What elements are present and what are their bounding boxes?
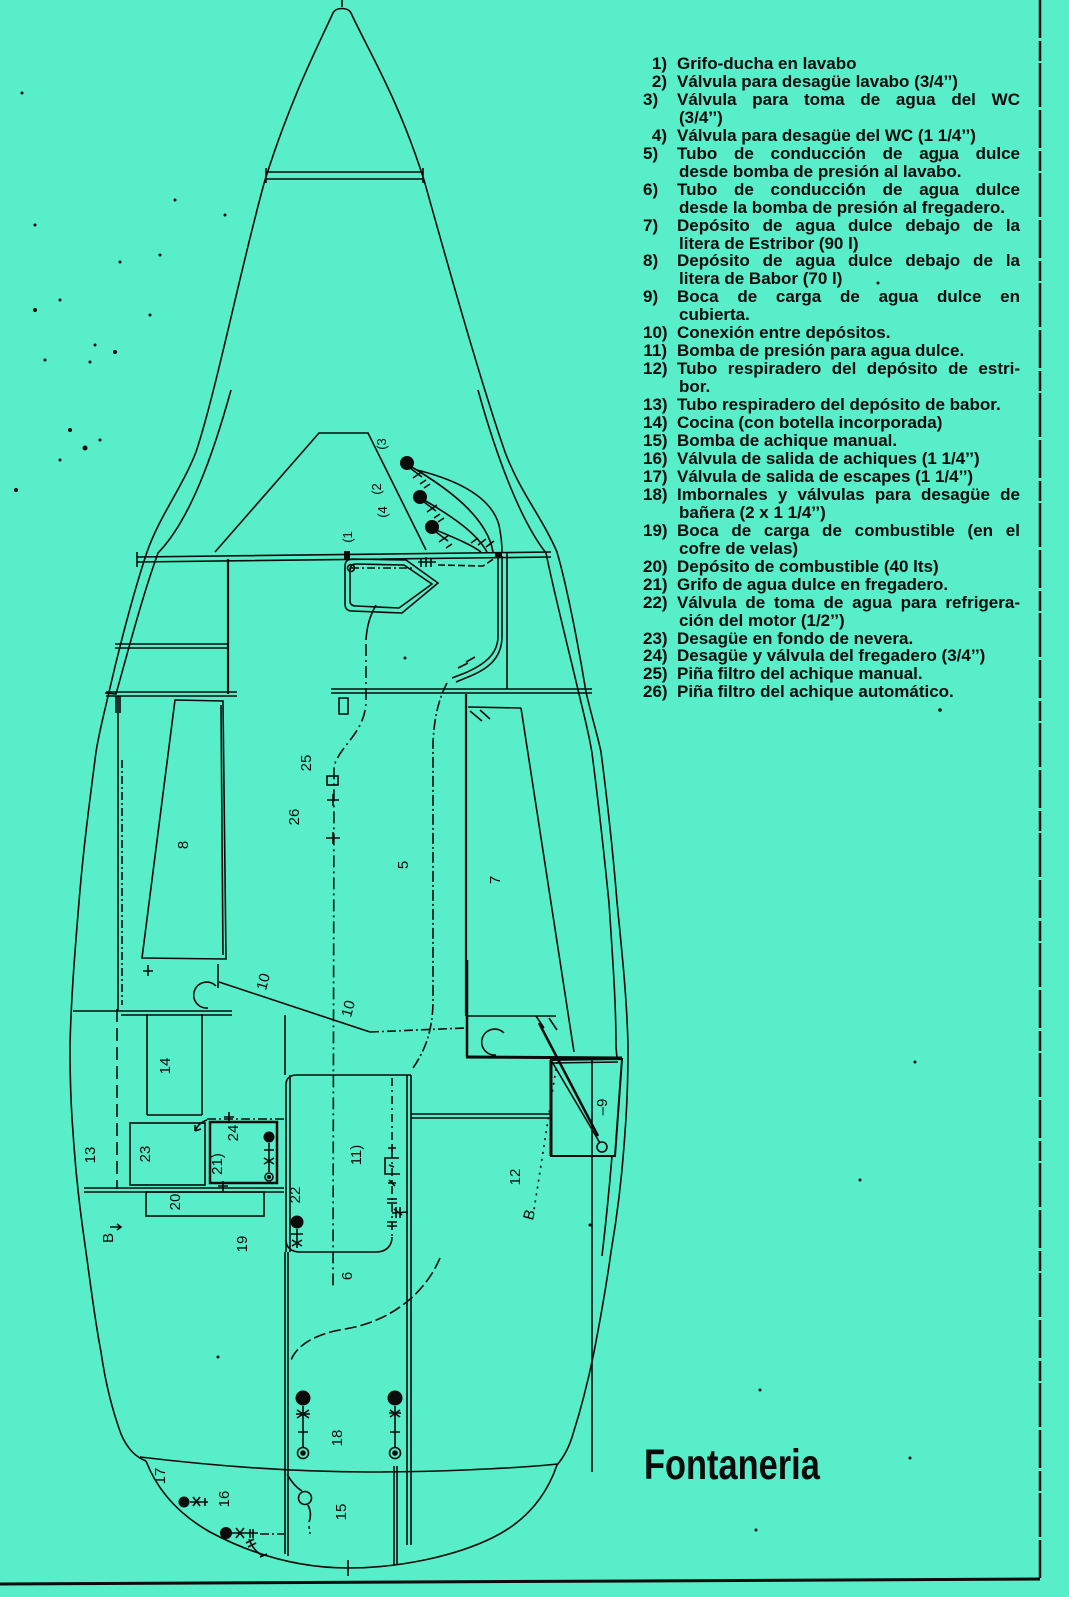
svg-text:B: B	[100, 1233, 117, 1243]
svg-text:(4: (4	[375, 506, 390, 518]
svg-text:13: 13	[82, 1147, 99, 1164]
svg-text:23: 23	[137, 1146, 154, 1163]
svg-text:18: 18	[329, 1430, 346, 1447]
svg-text:B: B	[520, 1208, 539, 1222]
svg-text:(1: (1	[340, 531, 355, 543]
svg-text:19: 19	[234, 1236, 251, 1253]
svg-text:24: 24	[225, 1125, 242, 1142]
svg-text:7: 7	[487, 876, 504, 884]
svg-text:25: 25	[298, 755, 315, 772]
svg-text:(2: (2	[369, 483, 384, 495]
svg-text:10: 10	[253, 972, 274, 993]
svg-text:11): 11)	[348, 1145, 365, 1166]
svg-text:20: 20	[167, 1194, 184, 1211]
svg-text:14: 14	[157, 1058, 174, 1075]
svg-text:21): 21)	[209, 1153, 226, 1175]
svg-text:–9: –9	[594, 1099, 611, 1116]
svg-text:6: 6	[339, 1272, 356, 1280]
svg-text:26: 26	[286, 809, 303, 826]
svg-text:(3: (3	[374, 438, 389, 450]
svg-text:10: 10	[338, 999, 359, 1020]
svg-text:5: 5	[395, 861, 412, 869]
svg-text:15: 15	[333, 1504, 350, 1521]
svg-text:22: 22	[287, 1187, 304, 1204]
svg-text:17: 17	[152, 1468, 169, 1485]
svg-text:8: 8	[175, 841, 192, 849]
svg-text:12: 12	[507, 1169, 524, 1186]
svg-text:16: 16	[216, 1491, 233, 1508]
